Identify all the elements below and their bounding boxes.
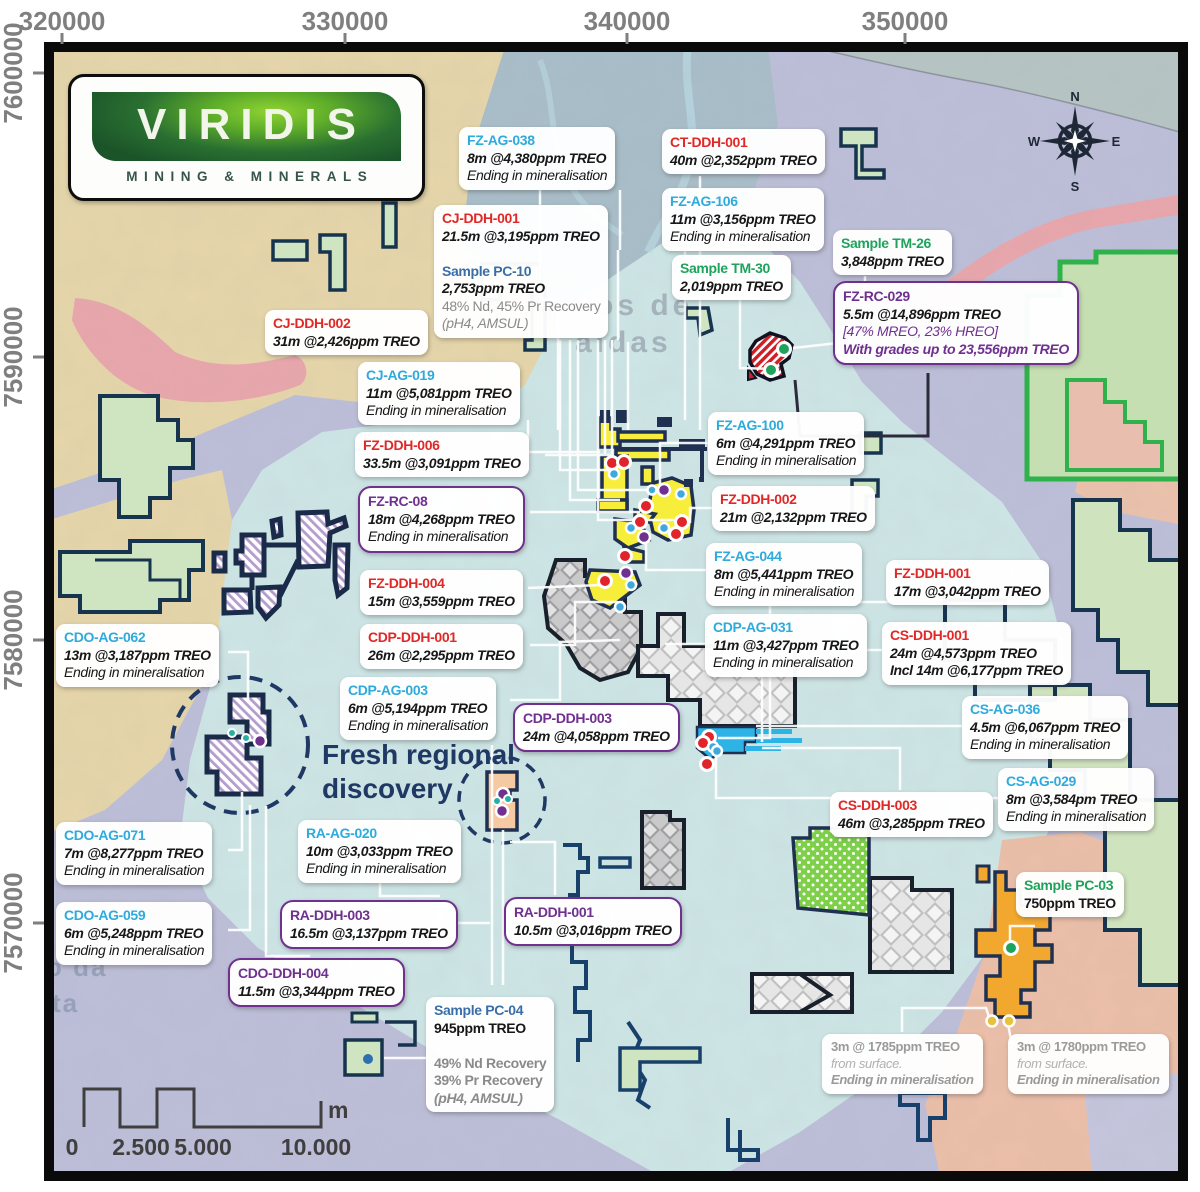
svg-text:10.000: 10.000 (281, 1134, 351, 1160)
svg-text:5.000: 5.000 (174, 1134, 232, 1160)
svg-text:7570000: 7570000 (0, 872, 28, 973)
svg-text:330000: 330000 (302, 6, 389, 36)
svg-text:ta: ta (52, 988, 79, 1018)
svg-text:E: E (1112, 134, 1121, 149)
svg-text:2.500: 2.500 (112, 1134, 170, 1160)
svg-text:320000: 320000 (19, 6, 106, 36)
svg-text:W: W (1028, 134, 1041, 149)
svg-text:0: 0 (66, 1134, 79, 1160)
svg-text:m: m (328, 1097, 348, 1123)
svg-text:7580000: 7580000 (0, 589, 28, 690)
svg-text:N: N (1070, 89, 1079, 104)
svg-text:7590000: 7590000 (0, 306, 28, 407)
svg-text:340000: 340000 (584, 6, 671, 36)
svg-text:S: S (1071, 179, 1080, 194)
svg-text:350000: 350000 (862, 6, 949, 36)
svg-text:7600000: 7600000 (0, 22, 28, 123)
